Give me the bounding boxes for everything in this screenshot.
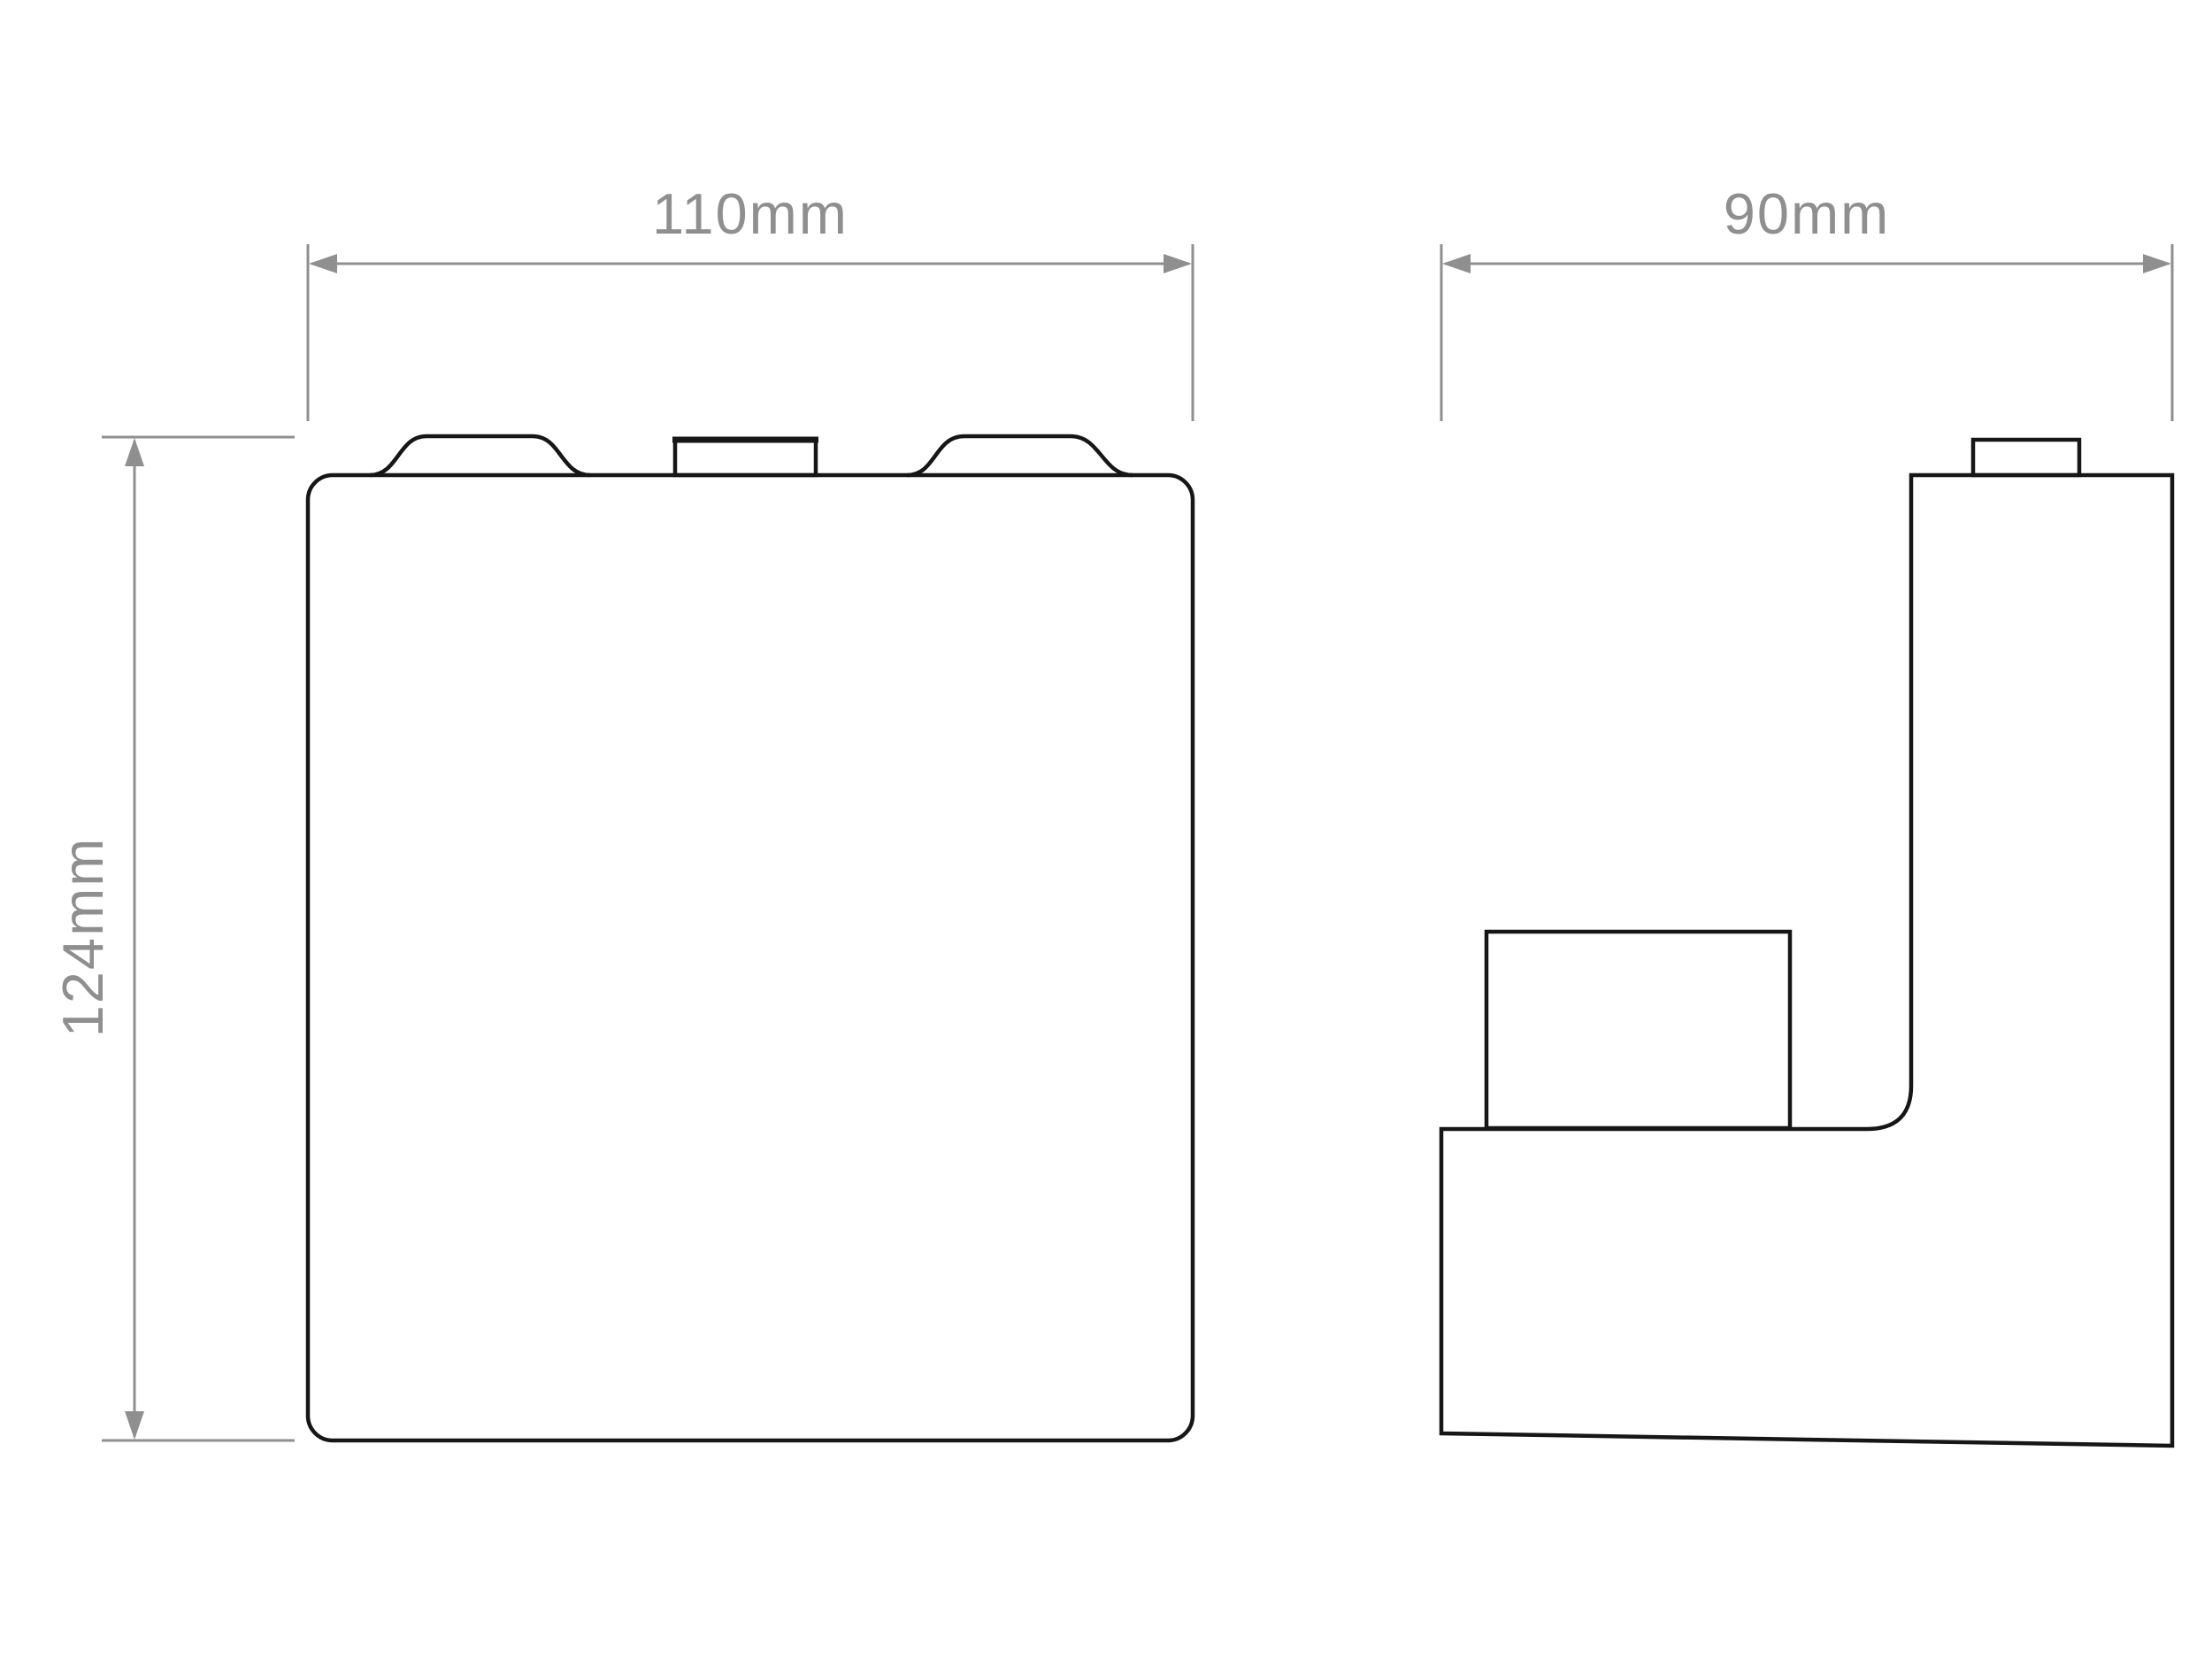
- height-arrowhead-bottom: [125, 1411, 144, 1440]
- front-left-bump: [370, 436, 590, 475]
- front-right-bump: [907, 436, 1133, 475]
- depth-arrowhead-right: [2143, 254, 2171, 273]
- dimension-side-depth: 90mm: [1441, 181, 2172, 421]
- width-arrowhead-right: [1164, 254, 1192, 273]
- front-center-tab: [675, 440, 816, 475]
- height-arrowhead-top: [125, 438, 144, 466]
- side-profile-outline: [1441, 475, 2172, 1446]
- dimension-front-height: 124mm: [50, 437, 295, 1440]
- dimension-drawing: 110mm 124mm 90mm: [0, 0, 2212, 1659]
- width-arrowhead-left: [309, 254, 337, 273]
- front-body-outline: [308, 475, 1193, 1440]
- height-dimension-label: 124mm: [50, 837, 115, 1038]
- dimension-front-width: 110mm: [308, 181, 1193, 421]
- front-view: [308, 436, 1193, 1440]
- side-wall-box: [1486, 932, 1790, 1128]
- depth-arrowhead-left: [1442, 254, 1471, 273]
- side-view: [1441, 440, 2172, 1446]
- side-top-tab: [1973, 440, 2079, 475]
- canvas: { "drawing": { "background": "#ffffff", …: [0, 0, 2212, 1659]
- width-dimension-label: 110mm: [652, 181, 849, 246]
- depth-dimension-label: 90mm: [1724, 181, 1891, 246]
